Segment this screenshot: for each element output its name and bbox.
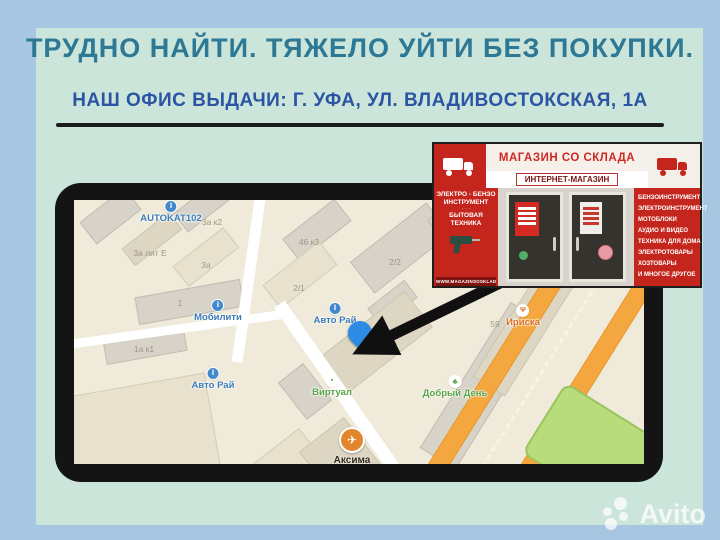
- avito-logo-icon: [602, 496, 634, 532]
- storefront-left-panel: ЭЛЕКТРО - БЕНЗО ИНСТРУМЕНТ · · · БЫТОВАЯ…: [434, 188, 498, 286]
- avito-wordmark: Avito: [640, 499, 707, 530]
- storefront-photo: МАГАЗИН СО СКЛАДА ИНТЕРНЕТ-МАГАЗИН ЭЛЕКТ…: [432, 142, 702, 288]
- door-left: [506, 192, 563, 282]
- map-poi: ♣Добрый День: [423, 376, 488, 399]
- auto-icon: ‖: [165, 201, 176, 212]
- category-item: ЭЛЕКТРОТОВАРЫ: [638, 248, 696, 259]
- door-handle: [553, 237, 556, 251]
- map-poi-label: Виртуал: [312, 387, 352, 398]
- category-item: ХОЗТОВАРЫ: [638, 259, 696, 270]
- building-number: 3а к2: [202, 217, 222, 227]
- auto-icon: ‖: [207, 368, 218, 379]
- shop-icon: ▪: [327, 375, 338, 386]
- building-number: 46 к3: [299, 237, 319, 247]
- category-item: АУДИО И ВИДЕО: [638, 226, 696, 237]
- storefront-banner: МАГАЗИН СО СКЛАДА ИНТЕРНЕТ-МАГАЗИН: [434, 144, 700, 188]
- poi-aksima: ✈ Аксима Выгодные авиабилеты и туры! Зво…: [152, 427, 452, 464]
- store-subtitle-text: ИНТЕРНЕТ-МАГАЗИН: [516, 173, 619, 186]
- category-item: МОТОБЛОКИ: [638, 215, 696, 226]
- office-address: НАШ ОФИС ВЫДАЧИ: Г. УФА, УЛ. ВЛАДИВОСТОК…: [0, 90, 720, 112]
- map-poi: ‖Мобилити: [194, 300, 242, 323]
- category-item: ТЕХНИКА ДЛЯ ДОМА: [638, 237, 696, 248]
- building-number: 59: [490, 319, 499, 329]
- store-doors: [498, 188, 634, 286]
- category-item: БЕНЗОИНСТРУМЕНТ: [638, 193, 696, 204]
- door-right: [569, 192, 626, 282]
- panel-text: ТЕХНИКА: [436, 220, 496, 228]
- map-building: [79, 200, 141, 245]
- building-number: 3а: [201, 260, 210, 270]
- map-poi: ‖Авто Рай: [192, 368, 235, 391]
- open-sticker: [519, 251, 528, 260]
- category-item: И МНОГОЕ ДРУГОЕ: [638, 270, 696, 281]
- map-poi-label: AUTOKAT102: [140, 213, 201, 224]
- auto-icon: ‖: [212, 300, 223, 311]
- storefront-right-panel: БЕНЗОИНСТРУМЕНТЭЛЕКТРОИНСТРУМЕНТМОТОБЛОК…: [634, 188, 700, 286]
- building-number: 59/1: [382, 331, 399, 341]
- divider-line: [56, 123, 664, 127]
- auto-icon: ‖: [329, 303, 340, 314]
- building-number: 2/2: [389, 257, 401, 267]
- poi-aksima-name: Аксима: [252, 455, 452, 464]
- building-number: 1: [178, 298, 183, 308]
- panel-text: ЭЛЕКТРО - БЕНЗО: [436, 191, 496, 199]
- store-name: МАГАЗИН СО СКЛАДА: [486, 144, 648, 171]
- airplane-icon: ✈: [339, 427, 365, 453]
- map-poi: ‖AUTOKAT102: [140, 201, 201, 224]
- ad-page: ТРУДНО НАЙТИ. ТЯЖЕЛО УЙТИ БЕЗ ПОКУПКИ. Н…: [0, 0, 720, 540]
- map-poi: ‖Авто Рай: [314, 303, 357, 326]
- avito-watermark: Avito: [602, 496, 707, 532]
- panel-text: БЫТОВАЯ: [436, 212, 496, 220]
- map-poi-label: Ириска: [506, 317, 540, 328]
- map-poi-label: Мобилити: [194, 312, 242, 323]
- map-building: [173, 227, 239, 287]
- door-poster: [515, 202, 539, 236]
- truck-icon: [648, 144, 700, 188]
- map-poi-label: Авто Рай: [192, 380, 235, 391]
- category-item: ЭЛЕКТРОИНСТРУМЕНТ: [638, 204, 696, 215]
- sale-sticker: [598, 245, 613, 260]
- building-number: 2/1: [293, 283, 305, 293]
- building-number: 1а к1: [134, 344, 154, 354]
- map-poi: ΨИриска: [506, 305, 540, 328]
- map-poi-label: Добрый День: [423, 388, 488, 399]
- food-icon: Ψ: [517, 305, 528, 316]
- building-number: 3а лит Е: [133, 248, 166, 258]
- drill-image: [436, 230, 496, 256]
- park-area: [521, 382, 644, 464]
- store-subtitle: ИНТЕРНЕТ-МАГАЗИН: [486, 171, 648, 188]
- clover-icon: ♣: [449, 376, 460, 387]
- map-poi: ▪Виртуал: [312, 375, 352, 398]
- door-poster: [580, 202, 602, 234]
- website-strip: WWW.MAGAZINSOSKLADA.RU: [436, 277, 496, 286]
- headline: ТРУДНО НАЙТИ. ТЯЖЕЛО УЙТИ БЕЗ ПОКУПКИ.: [0, 33, 720, 64]
- truck-icon: [434, 144, 486, 188]
- door-handle: [576, 237, 579, 251]
